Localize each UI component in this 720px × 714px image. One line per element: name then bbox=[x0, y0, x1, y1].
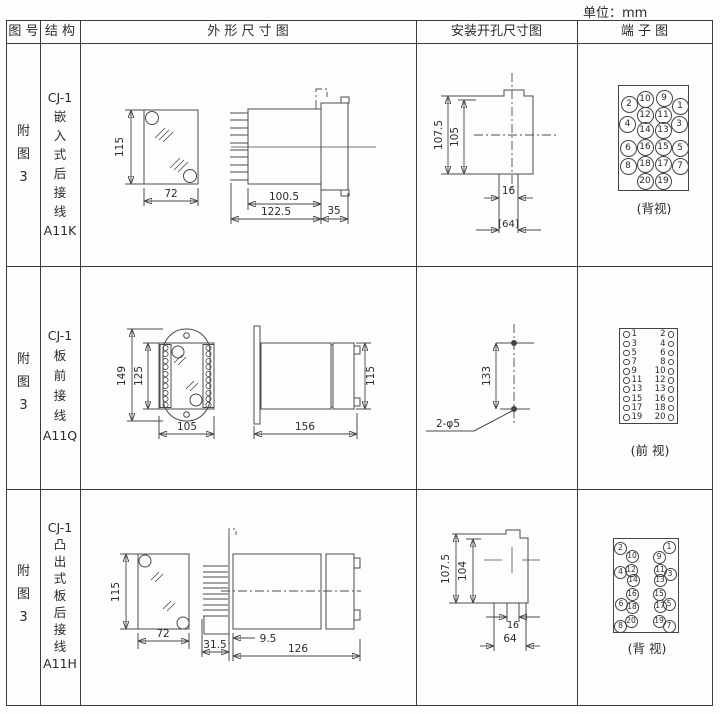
terminal-circle bbox=[623, 350, 630, 357]
terminal-row: 78 bbox=[623, 358, 674, 367]
side-view: 115 156 bbox=[254, 326, 377, 439]
terminal-row: 1112 bbox=[623, 376, 674, 385]
terminal-pin: 5 bbox=[672, 140, 689, 157]
figure-no-row1: 附 图 3 bbox=[7, 120, 40, 189]
terminal-number: 15 bbox=[632, 395, 643, 404]
terminal-caption-row3: (背 视) bbox=[602, 638, 692, 657]
terminal-row: 12 bbox=[623, 330, 674, 339]
terminal-circle bbox=[668, 396, 675, 403]
front-view: 115 72 bbox=[114, 110, 198, 206]
terminal-pin: 5 bbox=[663, 598, 676, 611]
outline-drawing-a11k: 115 72 100.5 bbox=[80, 43, 416, 266]
terminal-diagram-a11k: 2 10 9 1 4 12 11 3 14 13 6 16 15 5 8 18 … bbox=[618, 85, 689, 191]
mounting-drawing-a11k: 107.5 105 16 [64] bbox=[416, 43, 577, 266]
terminal-circle bbox=[668, 414, 675, 421]
structure-row2: CJ-1 板 前 接 线 A11Q bbox=[40, 326, 80, 446]
terminal-number: 2 bbox=[660, 330, 665, 339]
dim-outer-height: 107.5 bbox=[433, 120, 445, 150]
terminal-pin: 13 bbox=[654, 574, 667, 587]
dim-outer-height: 107.5 bbox=[440, 554, 452, 584]
mounting-drawing-a11q: 133 2-φ5 bbox=[416, 266, 577, 489]
structure-row1: CJ-1 嵌 入 式 后 接 线 A11K bbox=[40, 88, 80, 240]
dim-inner-height: 105 bbox=[449, 127, 461, 147]
terminal-diagram-a11q: 12 34 56 78 910 1112 1313 1516 1718 1920 bbox=[619, 328, 678, 424]
dim-notch-width: 16 bbox=[502, 185, 516, 197]
terminal-pin: 9 bbox=[653, 551, 666, 564]
terminal-circle bbox=[668, 359, 675, 366]
outline-drawing-a11q: 149 125 105 115 156 bbox=[80, 266, 416, 489]
header-mounting: 安装开孔尺寸图 bbox=[416, 21, 577, 43]
structure-row3: CJ-1 凸 出 式 板 后 接 线 A11H bbox=[40, 519, 80, 672]
terminal-pin: 4 bbox=[619, 116, 636, 133]
side-view: 100.5 122.5 35 bbox=[230, 89, 376, 224]
terminal-pin: 11 bbox=[655, 107, 672, 124]
terminal-pin: 8 bbox=[614, 620, 627, 633]
terminal-circle bbox=[623, 331, 630, 338]
terminal-diagram-a11h: 2 1 10 9 4 12 11 3 14 13 16 15 6 18 17 5… bbox=[613, 538, 679, 633]
dim-gap: 9.5 bbox=[260, 633, 277, 645]
terminal-pin: 1 bbox=[663, 541, 676, 554]
terminal-pin: 3 bbox=[671, 116, 688, 133]
terminal-number: 3 bbox=[632, 340, 637, 349]
terminal-circle bbox=[623, 368, 630, 375]
terminal-circle bbox=[623, 396, 630, 403]
terminal-circle bbox=[623, 341, 630, 348]
document-page: 单位：mm 图 号 结 构 外 形 尺 寸 图 安装开孔尺寸图 端 子 图 附 … bbox=[0, 0, 720, 714]
terminal-circle bbox=[623, 414, 630, 421]
terminal-row: 1516 bbox=[623, 395, 674, 404]
dim-depth: 156 bbox=[295, 421, 315, 433]
terminal-row: 910 bbox=[623, 367, 674, 376]
grid-line bbox=[577, 21, 578, 705]
header-figure-no: 图 号 bbox=[7, 21, 40, 43]
front-view: 149 125 105 bbox=[116, 329, 214, 439]
terminal-pin: 10 bbox=[626, 550, 639, 563]
terminal-number: 20 bbox=[655, 413, 666, 422]
dim-plate-height: 149 bbox=[116, 366, 128, 386]
terminal-number: 6 bbox=[660, 349, 665, 358]
header-terminal: 端 子 图 bbox=[577, 21, 712, 43]
unit-label: 单位：mm bbox=[583, 2, 647, 21]
dim-front-width: 72 bbox=[156, 628, 169, 640]
mounting-drawing-a11h: 107.5 104 16 64 bbox=[416, 489, 577, 706]
terminal-pin: 16 bbox=[637, 139, 654, 156]
dim-front-height: 115 bbox=[114, 137, 126, 157]
terminal-circle bbox=[668, 341, 675, 348]
terminal-pin: 12 bbox=[637, 107, 654, 124]
terminal-pin: 13 bbox=[655, 122, 672, 139]
terminal-pin: 18 bbox=[637, 156, 654, 173]
side-view: 31.5 9.5 126 bbox=[202, 529, 361, 661]
terminal-row: 1920 bbox=[623, 413, 674, 422]
dim-front-height: 115 bbox=[110, 582, 122, 602]
terminal-circle bbox=[668, 405, 675, 412]
terminal-number: 13 bbox=[632, 385, 643, 394]
dim-body-depth: 126 bbox=[288, 643, 308, 655]
terminal-circle bbox=[668, 350, 675, 357]
figure-no-row3: 附 图 3 bbox=[7, 560, 40, 629]
spec-table: 图 号 结 构 外 形 尺 寸 图 安装开孔尺寸图 端 子 图 附 图 3 CJ… bbox=[6, 20, 713, 706]
terminal-row: 56 bbox=[623, 349, 674, 358]
dim-body-depth: 100.5 bbox=[269, 191, 299, 203]
dim-side-height: 115 bbox=[365, 366, 377, 386]
dim-cutout-width: [64] bbox=[498, 219, 519, 230]
dim-total-depth: 122.5 bbox=[261, 206, 291, 218]
terminal-circle bbox=[623, 405, 630, 412]
terminal-pin: 15 bbox=[653, 588, 666, 601]
terminal-circle bbox=[623, 377, 630, 384]
terminal-number: 16 bbox=[655, 395, 666, 404]
terminal-pin: 1 bbox=[672, 98, 689, 115]
outline-drawing-a11h: 115 72 31.5 bbox=[80, 489, 416, 706]
terminal-pin: 2 bbox=[621, 96, 638, 113]
terminal-pin: 20 bbox=[637, 173, 654, 190]
figure-no-row2: 附 图 3 bbox=[7, 348, 40, 417]
header-structure: 结 构 bbox=[40, 21, 80, 43]
dim-bezel-depth: 35 bbox=[327, 205, 340, 217]
terminal-caption-row2: (前 视) bbox=[605, 440, 695, 459]
dim-pin-depth: 31.5 bbox=[203, 639, 226, 651]
terminal-number: 4 bbox=[660, 340, 665, 349]
terminal-circle bbox=[668, 377, 675, 384]
terminal-number: 19 bbox=[632, 413, 643, 422]
terminal-pin: 2 bbox=[614, 542, 627, 555]
terminal-circle bbox=[668, 331, 675, 338]
terminal-pin: 8 bbox=[620, 158, 637, 175]
terminal-pin: 10 bbox=[637, 91, 654, 108]
terminal-row: 34 bbox=[623, 340, 674, 349]
terminal-circle bbox=[668, 386, 675, 393]
terminal-pin: 15 bbox=[655, 139, 672, 156]
terminal-pin: 7 bbox=[663, 620, 676, 633]
terminal-pin: 9 bbox=[656, 90, 673, 107]
terminal-circle bbox=[668, 368, 675, 375]
terminal-caption-row1: (背视) bbox=[609, 198, 699, 217]
dim-notch-width: 16 bbox=[507, 620, 519, 631]
terminal-number: 5 bbox=[632, 349, 637, 358]
dim-hole-span: 133 bbox=[481, 366, 493, 386]
dim-body-width: 105 bbox=[177, 421, 197, 433]
terminal-pin: 17 bbox=[655, 156, 672, 173]
header-outline: 外 形 尺 寸 图 bbox=[80, 21, 416, 43]
terminal-pin: 16 bbox=[626, 588, 639, 601]
terminal-pin: 6 bbox=[620, 140, 637, 157]
terminal-pin: 14 bbox=[627, 574, 640, 587]
terminal-pin: 7 bbox=[672, 158, 689, 175]
terminal-pin: 19 bbox=[655, 173, 672, 190]
front-view: 115 72 bbox=[110, 554, 189, 649]
dim-body-height: 125 bbox=[133, 366, 145, 386]
terminal-pin: 14 bbox=[637, 122, 654, 139]
terminal-pin: 18 bbox=[626, 601, 639, 614]
dim-cutout-width: 64 bbox=[503, 633, 517, 645]
dim-front-width: 72 bbox=[164, 188, 177, 200]
terminal-row: 1313 bbox=[623, 385, 674, 394]
terminal-number: 1 bbox=[632, 330, 637, 339]
hole-spec-label: 2-φ5 bbox=[436, 418, 460, 430]
terminal-row: 1718 bbox=[623, 404, 674, 413]
dim-inner-height: 104 bbox=[457, 561, 469, 581]
terminal-circle bbox=[623, 359, 630, 366]
terminal-number: 13 bbox=[655, 385, 666, 394]
terminal-circle bbox=[623, 386, 630, 393]
